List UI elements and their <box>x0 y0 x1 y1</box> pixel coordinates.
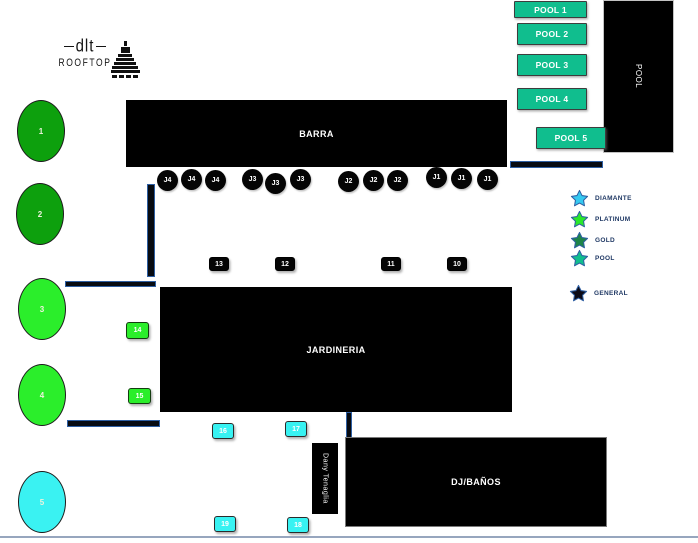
legend-label: POOL <box>595 255 615 262</box>
oval-table-label: 5 <box>40 498 44 507</box>
table-cyan[interactable]: 16 <box>212 423 234 439</box>
table-cyan[interactable]: 18 <box>287 517 309 533</box>
j-seat[interactable]: J1 <box>451 168 472 189</box>
table-label: 18 <box>294 522 302 529</box>
venue-floor-plan: dlt ROOFTOP POOL 1 POOL 2 POOL 3 <box>0 0 698 543</box>
pyramid-caption-marks <box>112 75 138 78</box>
logo-brand-text: dlt <box>76 37 95 57</box>
pool-table-label: POOL 1 <box>534 5 567 15</box>
j-seat-label: J2 <box>394 177 402 184</box>
pool-table[interactable]: POOL 5 <box>536 127 606 149</box>
pool-table-label: POOL 5 <box>555 133 588 143</box>
table-label: 19 <box>221 521 229 528</box>
tier-star-icon <box>570 231 589 250</box>
wall-left-vertical <box>147 184 155 277</box>
oval-table[interactable]: 5 <box>18 471 66 533</box>
legend-item: PLATINUM <box>570 210 631 229</box>
pyramid-icon <box>110 41 140 78</box>
table-label: 10 <box>453 261 461 268</box>
j-seat-label: J3 <box>297 176 305 183</box>
table-green[interactable]: 15 <box>128 388 151 404</box>
dj-banos-label: DJ/BAÑOS <box>451 477 501 487</box>
j-seat-label: J1 <box>433 174 441 181</box>
table-label: 13 <box>215 261 223 268</box>
legend-item: GENERAL <box>569 284 628 303</box>
legend-label: DIAMANTE <box>595 195 632 202</box>
table-black[interactable]: 11 <box>381 257 401 271</box>
oval-table-label: 4 <box>40 391 44 400</box>
table-label: 11 <box>387 261 394 268</box>
legend-label: GENERAL <box>594 290 628 297</box>
j-seat-label: J4 <box>164 177 172 184</box>
j-seat[interactable]: J1 <box>426 167 447 188</box>
j-seat[interactable]: J4 <box>157 170 178 191</box>
oval-table-label: 1 <box>39 127 43 136</box>
tier-star-icon <box>570 249 589 268</box>
wall-below-pool5 <box>510 161 603 168</box>
j-seat[interactable]: J3 <box>242 169 263 190</box>
dany-tenaglia-label: Dany Tenaglia <box>322 453 329 504</box>
barra-area: BARRA <box>126 100 507 167</box>
dany-tenaglia-booth: Dany Tenaglia <box>312 443 338 514</box>
table-cyan[interactable]: 19 <box>214 516 236 532</box>
table-label: 15 <box>136 393 144 400</box>
oval-table-label: 2 <box>38 210 42 219</box>
pool-table[interactable]: POOL 1 <box>514 1 587 18</box>
j-seat[interactable]: J2 <box>363 170 384 191</box>
wall-left-horizontal-lower <box>67 420 160 427</box>
pool-table-label: POOL 4 <box>536 94 569 104</box>
j-seat[interactable]: J4 <box>205 170 226 191</box>
barra-label: BARRA <box>299 129 334 139</box>
j-seat-label: J4 <box>212 177 220 184</box>
oval-table-label: 3 <box>40 305 44 314</box>
legend-item: GOLD <box>570 231 615 250</box>
venue-logo: dlt ROOFTOP <box>54 38 116 67</box>
legend-label: GOLD <box>595 237 615 244</box>
j-seat-label: J3 <box>249 176 257 183</box>
j-seat[interactable]: J3 <box>265 173 286 194</box>
j-seat[interactable]: J4 <box>181 169 202 190</box>
pool-area: POOL <box>603 0 674 153</box>
table-black[interactable]: 10 <box>447 257 467 271</box>
jardineria-area: JARDINERIA <box>160 287 512 412</box>
wall-dj-connector <box>346 412 352 438</box>
oval-table[interactable]: 4 <box>18 364 66 426</box>
j-seat-label: J1 <box>484 176 492 183</box>
oval-table[interactable]: 3 <box>18 278 66 340</box>
tier-star-icon <box>570 189 589 208</box>
logo-dash-right <box>96 46 106 48</box>
j-seat-label: J1 <box>458 175 466 182</box>
legend-label: PLATINUM <box>595 216 631 223</box>
j-seat-label: J2 <box>370 177 378 184</box>
jardineria-label: JARDINERIA <box>306 345 365 355</box>
logo-subtitle: ROOFTOP <box>54 56 116 69</box>
oval-table[interactable]: 1 <box>17 100 65 162</box>
j-seat-label: J4 <box>188 176 196 183</box>
table-label: 17 <box>292 426 300 433</box>
j-seat-label: J3 <box>272 180 280 187</box>
pool-table-label: POOL 3 <box>536 60 569 70</box>
legend-item: DIAMANTE <box>570 189 632 208</box>
j-seat[interactable]: J3 <box>290 169 311 190</box>
pool-table-label: POOL 2 <box>536 29 569 39</box>
table-label: 14 <box>134 327 142 334</box>
page-bottom-border <box>0 536 698 538</box>
pool-table[interactable]: POOL 2 <box>517 23 587 45</box>
table-label: 16 <box>219 428 227 435</box>
j-seat[interactable]: J1 <box>477 169 498 190</box>
pool-table[interactable]: POOL 4 <box>517 88 587 110</box>
wall-left-horizontal-upper <box>65 281 156 287</box>
dj-banos-area: DJ/BAÑOS <box>345 437 607 527</box>
tier-star-icon <box>569 284 588 303</box>
j-seat[interactable]: J2 <box>387 170 408 191</box>
j-seat-label: J2 <box>345 178 353 185</box>
table-black[interactable]: 13 <box>209 257 229 271</box>
table-black[interactable]: 12 <box>275 257 295 271</box>
oval-table[interactable]: 2 <box>16 183 64 245</box>
table-label: 12 <box>281 261 289 268</box>
j-seat[interactable]: J2 <box>338 171 359 192</box>
logo-dash-left <box>64 46 74 48</box>
table-green[interactable]: 14 <box>126 322 149 339</box>
pool-table[interactable]: POOL 3 <box>517 54 587 76</box>
legend-item: POOL <box>570 249 615 268</box>
pool-area-label: POOL <box>634 64 643 88</box>
tier-star-icon <box>570 210 589 229</box>
table-cyan[interactable]: 17 <box>285 421 307 437</box>
